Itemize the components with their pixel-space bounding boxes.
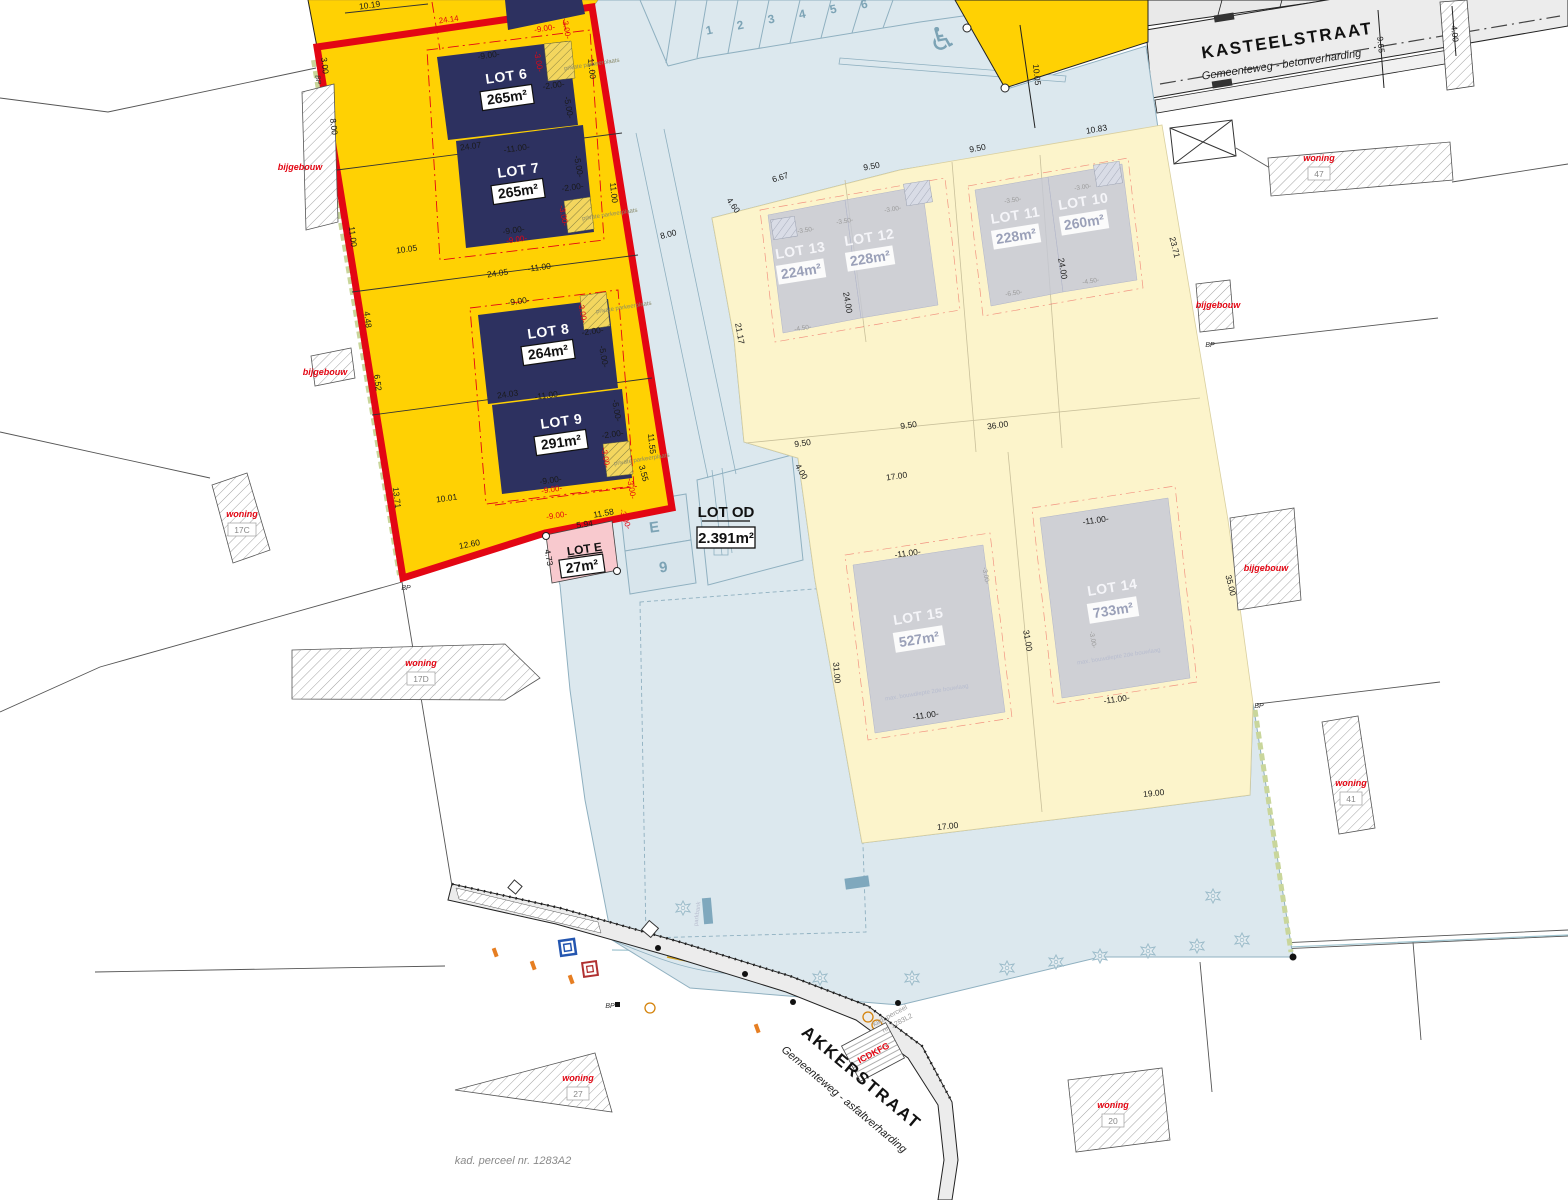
- survey-dot: [895, 1000, 901, 1006]
- corner-marker: [963, 24, 971, 32]
- bijgebouw-label: bijgebouw: [303, 367, 348, 377]
- bijgebouw-label: bijgebouw: [278, 162, 323, 172]
- kad-parcel-label: kad. perceel nr. 1283A2: [455, 1155, 571, 1167]
- bijgebouw-label: bijgebouw: [1244, 563, 1289, 573]
- house-number: 17C: [234, 525, 250, 535]
- red-utility-icon: [582, 961, 598, 977]
- house-number: 17D: [413, 674, 429, 684]
- bijgebouw-building: [1230, 508, 1301, 610]
- house-number: 20: [1108, 1116, 1118, 1126]
- survey-dot: [655, 945, 661, 951]
- woning-label: woning: [1303, 153, 1335, 163]
- site-plan: KASTEELSTRAAT Gemeenteweg - betonverhard…: [0, 0, 1568, 1200]
- dim-label: 9.65: [1375, 36, 1387, 54]
- hatch-notch: [544, 41, 575, 81]
- bp-point: [615, 1002, 620, 1007]
- woning-label: woning: [226, 509, 258, 519]
- woning-label: woning: [1335, 778, 1367, 788]
- bp-label: BP: [1205, 342, 1215, 349]
- woning-label: woning: [562, 1073, 594, 1083]
- dim-label: 31.00: [831, 662, 843, 684]
- dim-label: 6.52: [372, 374, 384, 392]
- dim-label: 4.48: [362, 311, 374, 329]
- corner-marker: [614, 568, 621, 575]
- woning-label: woning: [405, 658, 437, 668]
- corner-marker: [543, 533, 550, 540]
- survey-dot: [1290, 954, 1297, 961]
- corner-marker: [1001, 84, 1009, 92]
- bp-label: BP: [605, 1003, 615, 1010]
- bp-label: BP: [401, 585, 411, 592]
- bijgebouw-building: [302, 84, 338, 230]
- lot-od-area: 2.391m²: [698, 530, 754, 547]
- bijgebouw-label: bijgebouw: [1196, 300, 1241, 310]
- hatch-notch: [903, 180, 932, 206]
- house-number: 47: [1314, 169, 1324, 179]
- woning-20-building: [1068, 1068, 1170, 1152]
- woning-label: woning: [1097, 1100, 1129, 1110]
- hatch-notch: [1093, 161, 1122, 187]
- house-number: 27: [573, 1089, 583, 1099]
- house-number: 41: [1346, 794, 1356, 804]
- plan-canvas: KASTEELSTRAAT Gemeenteweg - betonverhard…: [0, 0, 1568, 1200]
- blue-utility-icon: [559, 939, 576, 956]
- hatch-notch: [771, 216, 798, 240]
- dim-label: 3.00: [319, 57, 331, 75]
- bp-label: BP: [313, 75, 321, 85]
- crossed-parcel-box: [1170, 120, 1236, 164]
- dim-label: 8.00: [328, 118, 340, 136]
- lot-od-name: LOT OD: [698, 504, 755, 521]
- building-lot14: [1040, 498, 1190, 698]
- survey-dot: [790, 999, 796, 1005]
- bp-label: BP: [1254, 703, 1264, 710]
- survey-dot: [742, 971, 748, 977]
- dim-label: 4.00: [1449, 25, 1461, 43]
